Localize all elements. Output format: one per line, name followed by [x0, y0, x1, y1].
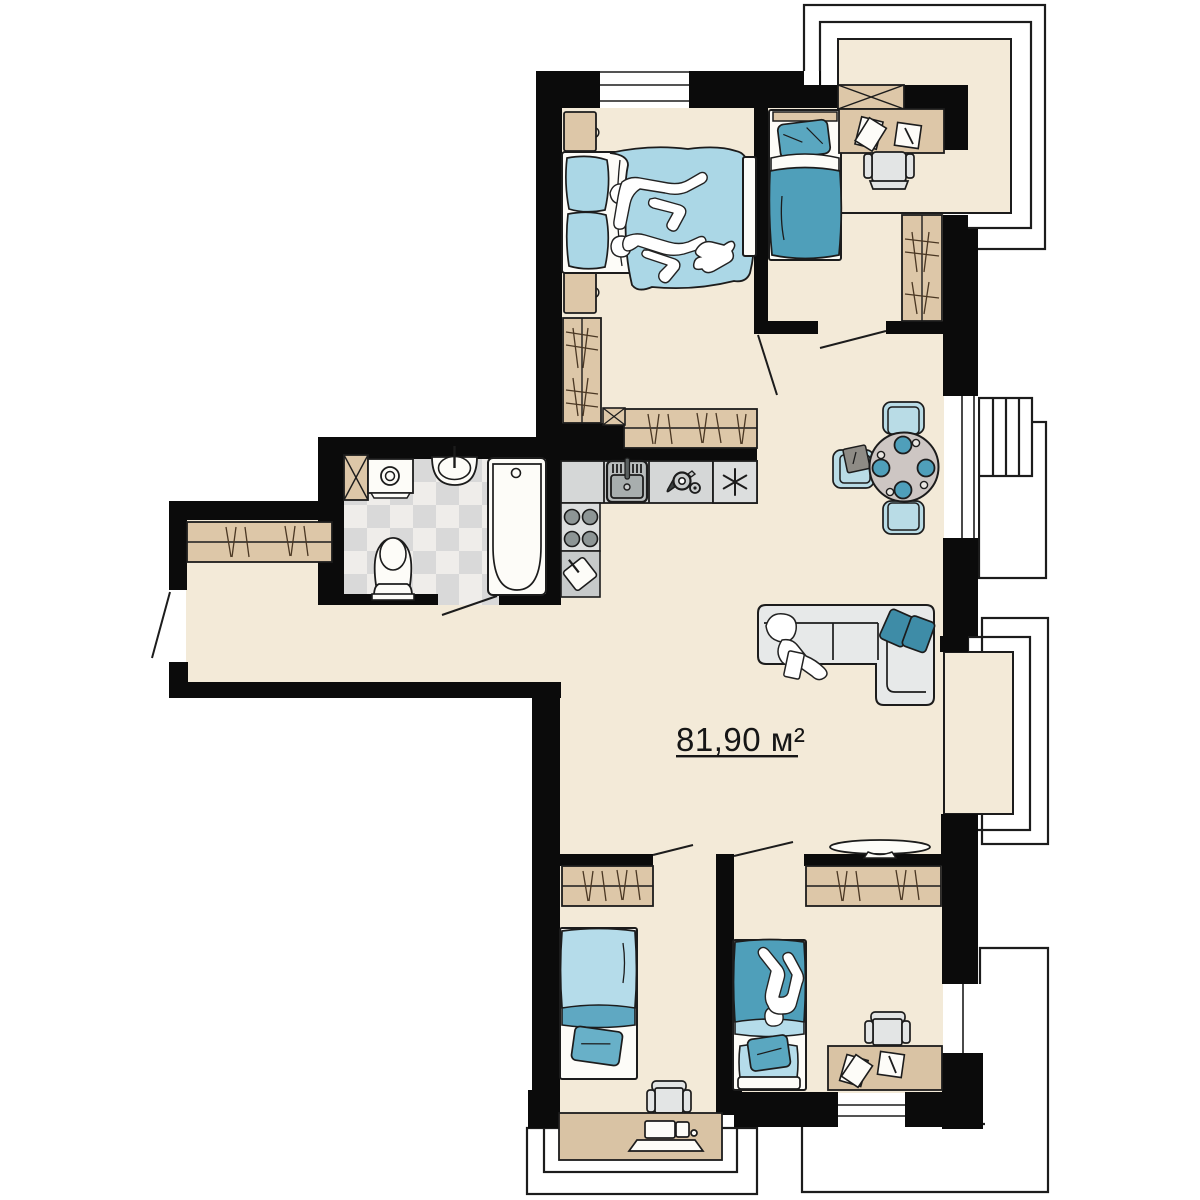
svg-text:81,90 м²: 81,90 м² [676, 721, 805, 758]
